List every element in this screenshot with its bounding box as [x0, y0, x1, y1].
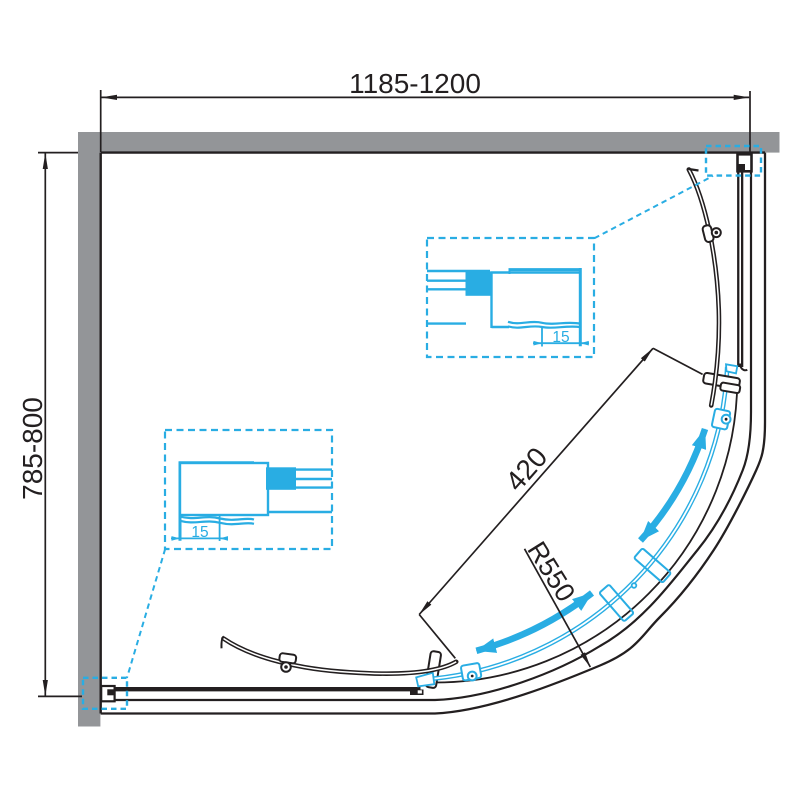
svg-text:15: 15 [191, 524, 208, 541]
svg-text:15: 15 [552, 329, 569, 346]
svg-text:785-800: 785-800 [17, 397, 48, 500]
svg-text:1185-1200: 1185-1200 [349, 68, 481, 99]
